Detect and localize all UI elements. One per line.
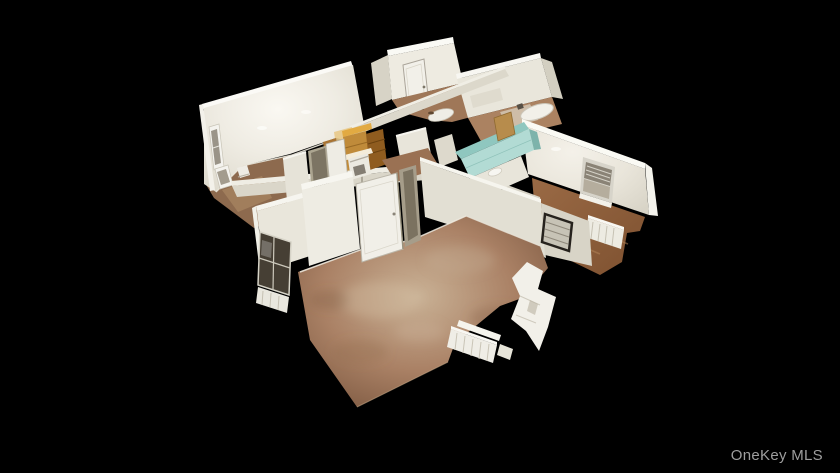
- ceiling-light-smudge: [257, 126, 267, 130]
- ceiling-light-smudge: [301, 110, 311, 114]
- dollhouse-3d-view: [0, 0, 840, 473]
- bay-window: [258, 232, 291, 295]
- floor-dark-mark: [428, 112, 434, 115]
- open-door: [356, 173, 403, 262]
- watermark-onekey-mls: OneKey MLS: [731, 447, 823, 464]
- ceiling-light-smudge: [551, 147, 561, 151]
- listing-photo-canvas: OneKey MLS: [0, 0, 840, 473]
